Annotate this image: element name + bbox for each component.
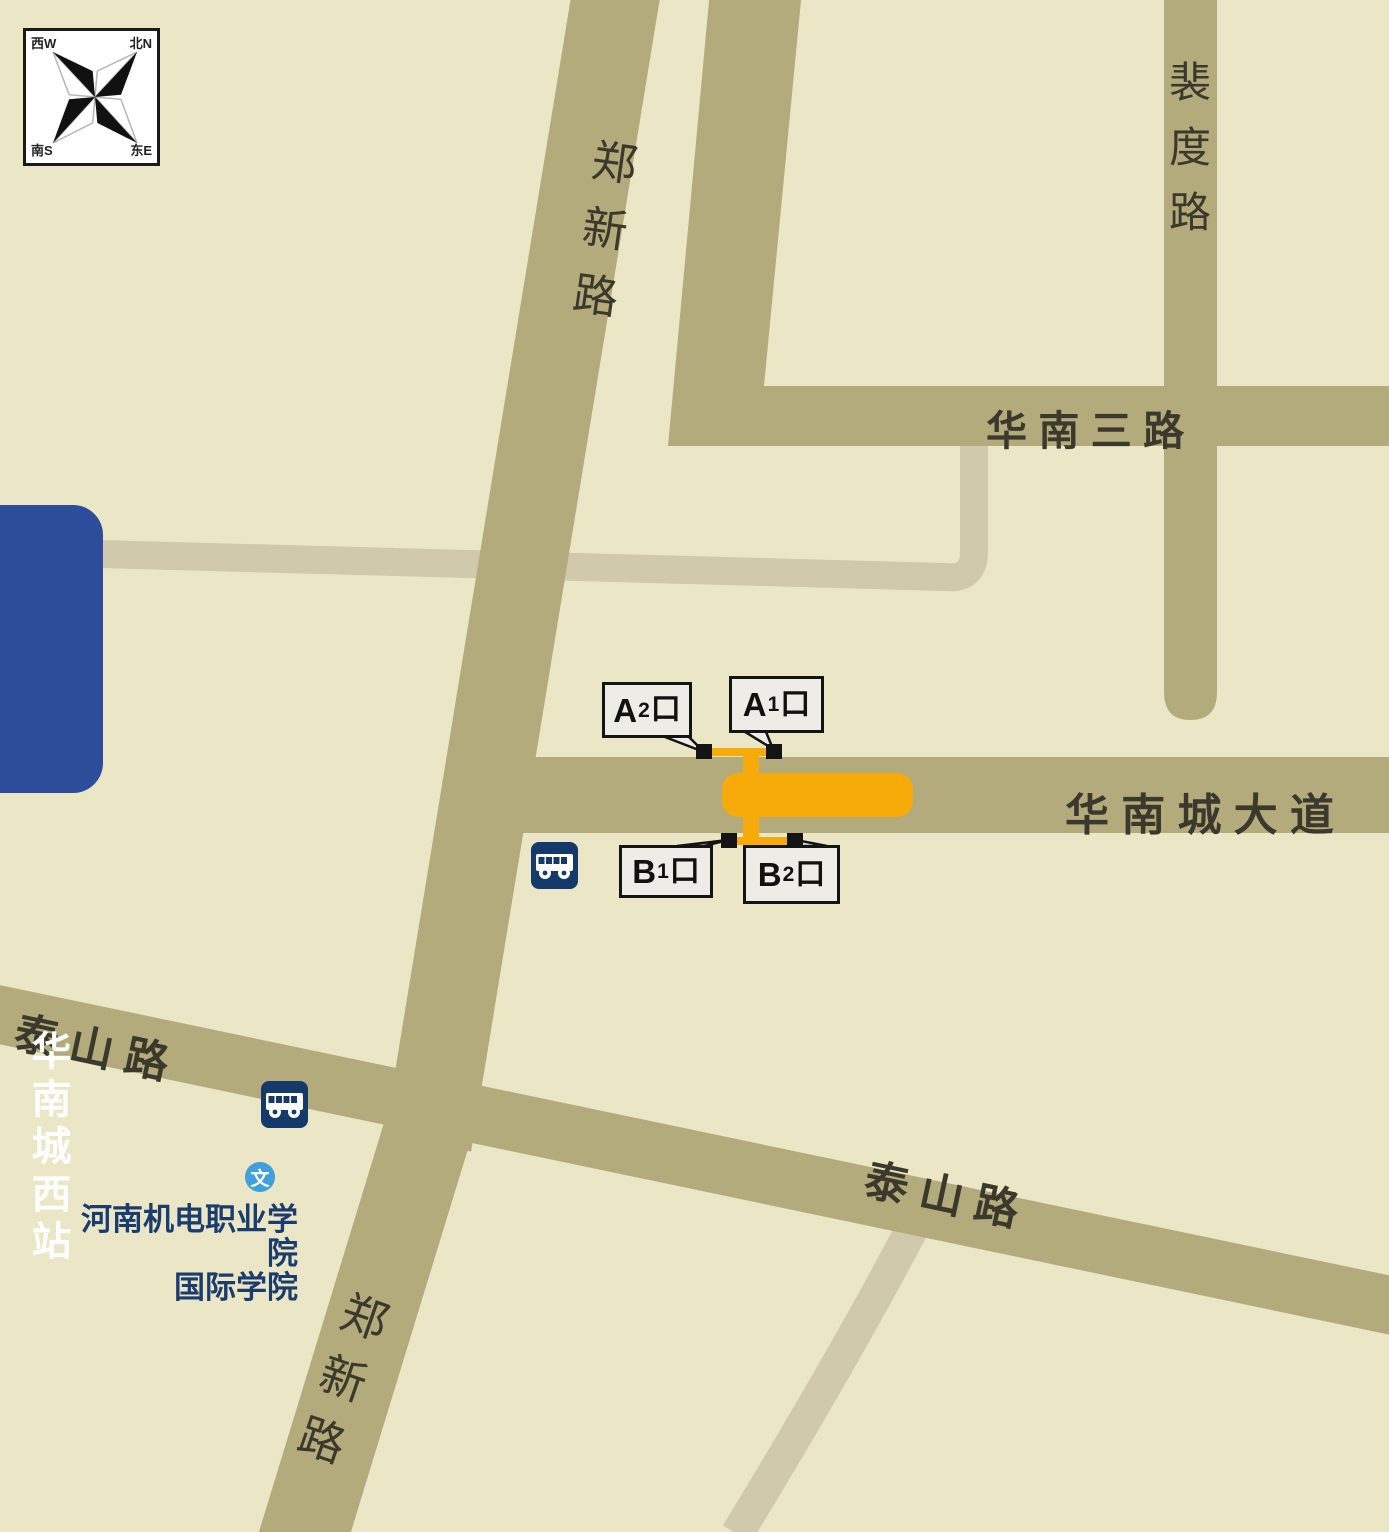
exit-number: 1	[657, 861, 669, 882]
compass-label-south: 南S	[31, 144, 53, 157]
exit-letter: B	[632, 855, 656, 888]
exit-square-a1	[766, 744, 782, 759]
exit-number: 2	[638, 700, 650, 721]
station-name-badge: 华南城西站	[0, 505, 103, 793]
station-area-map: A2口 A1口 B1口 B2口 郑新路 郑新路 裴度路 华 南 三 路 华 南 …	[0, 0, 1389, 1532]
exit-letter: B	[758, 858, 782, 891]
exit-number: 1	[768, 694, 780, 715]
exit-callout-a1: A1口	[729, 676, 824, 733]
school-name: 河南机电职业学院 国际学院	[55, 1203, 298, 1305]
exit-square-a2	[696, 744, 712, 759]
exit-callout-b1: B1口	[619, 845, 713, 898]
school-name-line2: 国际学院	[55, 1271, 298, 1305]
school-name-line1: 河南机电职业学院	[55, 1203, 298, 1271]
compass-label-north: 北N	[130, 37, 152, 50]
compass-rose: 西W 北N 南S 东E	[23, 28, 160, 166]
exit-suffix: 口	[780, 690, 810, 720]
compass-label-east: 东E	[130, 144, 152, 157]
exit-letter: A	[613, 694, 637, 727]
station-name: 华南城西站	[31, 1029, 72, 1267]
exit-suffix: 口	[795, 860, 825, 890]
station-platform	[722, 773, 913, 817]
exit-number: 2	[783, 864, 795, 885]
exit-suffix: 口	[651, 695, 681, 725]
exit-callout-a2: A2口	[602, 682, 692, 738]
school-marker-glyph: 文	[250, 1164, 269, 1191]
school-marker-icon: 文	[245, 1162, 275, 1192]
exit-suffix: 口	[670, 857, 700, 887]
bus-stop-icon	[261, 1081, 308, 1133]
bus-stop-icon	[531, 842, 578, 894]
exit-callout-b2: B2口	[743, 845, 840, 904]
compass-label-west: 西W	[31, 37, 56, 50]
exit-square-b1	[721, 833, 737, 848]
exit-letter: A	[743, 688, 767, 721]
